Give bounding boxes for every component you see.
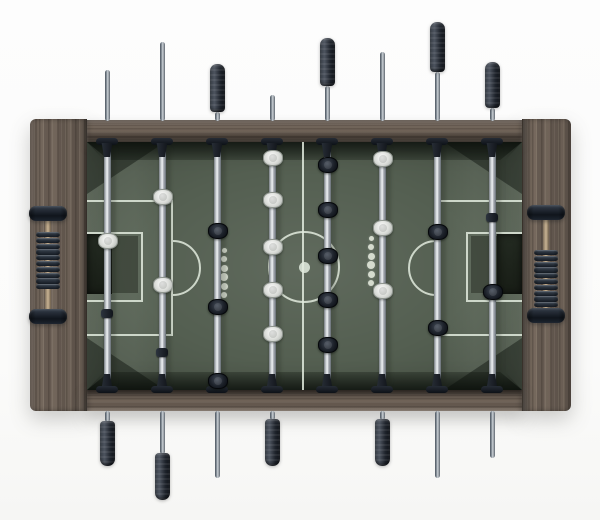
player-rod-8	[489, 142, 496, 390]
field-dot	[368, 253, 375, 260]
rod-5-top-end	[325, 86, 330, 121]
rod-bushing	[371, 386, 393, 393]
field-dot	[368, 280, 374, 286]
white-player	[153, 189, 173, 205]
score-bead	[36, 232, 60, 237]
black-player	[208, 299, 228, 315]
score-bead	[36, 261, 60, 266]
player-rod-5	[324, 142, 331, 390]
white-player	[263, 326, 283, 342]
player-rod-6	[379, 142, 386, 390]
score-bead	[36, 284, 60, 289]
black-player	[208, 223, 228, 239]
rod-stopper	[156, 348, 168, 357]
black-player	[318, 157, 338, 173]
black-player	[208, 373, 228, 389]
rod-4-shadow	[276, 148, 281, 384]
rod-8-bottom-end	[490, 411, 495, 458]
white-player	[373, 220, 393, 236]
white-player	[373, 151, 393, 167]
rod-1-top-end	[105, 70, 110, 121]
rod-2-bottom-end	[160, 411, 165, 454]
player-rod-3	[214, 142, 221, 390]
rod-bushing	[261, 386, 283, 393]
white-player	[98, 233, 118, 249]
rod-5-handle	[320, 38, 335, 86]
rod-3-bottom-end	[215, 411, 220, 478]
score-bead	[534, 285, 558, 290]
score-bead	[36, 267, 60, 272]
bottom-side-rail	[87, 390, 522, 411]
rod-8-top-end	[490, 108, 495, 121]
rod-7-shadow	[441, 148, 446, 384]
rod-3-top-end	[215, 112, 220, 121]
rod-8-shadow	[496, 148, 501, 384]
black-player	[483, 284, 503, 300]
score-bead	[534, 279, 558, 284]
rod-stopper	[101, 309, 113, 318]
player-rod-4	[269, 142, 276, 390]
field-dot	[368, 271, 375, 278]
player-rod-7	[434, 142, 441, 390]
white-player	[263, 150, 283, 166]
rod-2-handle	[155, 453, 170, 500]
field-dot	[368, 244, 374, 250]
rod-6-shadow	[386, 148, 391, 384]
score-bead	[534, 267, 558, 272]
field-dot	[369, 236, 374, 241]
white-player	[263, 192, 283, 208]
rod-6-handle	[375, 419, 390, 466]
rod-6-top-end	[380, 52, 385, 121]
rod-bushing	[426, 386, 448, 393]
score-bead	[534, 273, 558, 278]
black-player	[318, 337, 338, 353]
score-bead	[36, 273, 60, 278]
black-player	[318, 202, 338, 218]
field-dot	[367, 261, 375, 269]
rod-bushing	[481, 386, 503, 393]
rod-7-top-end	[435, 72, 440, 121]
rod-1-handle	[100, 421, 115, 466]
rod-7-bottom-end	[435, 411, 440, 478]
score-bead	[534, 262, 558, 267]
rod-8-handle	[485, 62, 500, 108]
score-bead	[534, 250, 558, 255]
rod-2-top-end	[160, 42, 165, 121]
rod-4-top-end	[270, 95, 275, 121]
scorer-end-cap	[527, 205, 565, 220]
rod-1-shadow	[111, 148, 116, 384]
rod-stopper	[486, 213, 498, 222]
score-bead	[36, 244, 60, 249]
black-player	[428, 224, 448, 240]
white-player	[373, 283, 393, 299]
foosball-table-product-photo	[0, 0, 600, 520]
score-bead	[534, 296, 558, 301]
score-bead	[36, 249, 60, 254]
black-player	[318, 292, 338, 308]
score-bead	[36, 238, 60, 243]
white-player	[153, 277, 173, 293]
score-bead	[36, 255, 60, 260]
scorer-end-cap	[527, 308, 565, 323]
scorer-end-cap	[29, 309, 67, 324]
rod-bushing	[316, 386, 338, 393]
score-bead	[534, 256, 558, 261]
score-bead	[534, 291, 558, 296]
scorer-end-cap	[29, 206, 67, 221]
rod-7-handle	[430, 22, 445, 72]
score-bead	[36, 278, 60, 283]
rod-3-shadow	[221, 148, 226, 384]
black-player	[428, 320, 448, 336]
rod-bushing	[151, 386, 173, 393]
player-rod-1	[104, 142, 111, 390]
score-bead	[534, 302, 558, 307]
black-player	[318, 248, 338, 264]
center-spot	[299, 262, 310, 273]
rod-3-handle	[210, 64, 225, 112]
rod-4-handle	[265, 419, 280, 466]
rod-bushing	[96, 386, 118, 393]
white-player	[263, 282, 283, 298]
white-player	[263, 239, 283, 255]
